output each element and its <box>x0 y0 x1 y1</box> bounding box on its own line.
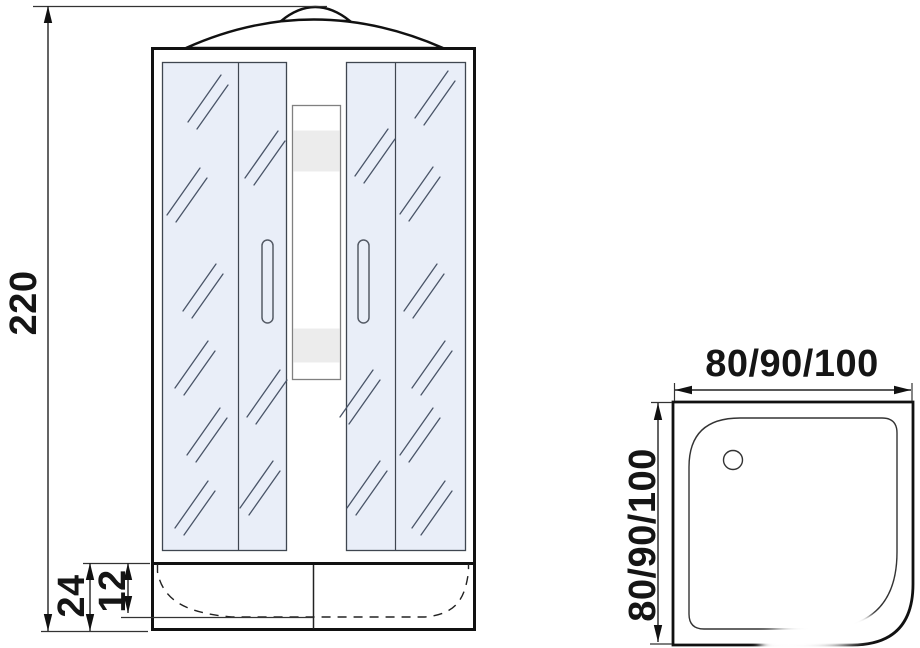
dim-label-depth: 80/90/100 <box>622 448 664 622</box>
drain-circle <box>724 451 743 470</box>
arrowhead-left <box>675 386 692 394</box>
glass-door-group-left <box>163 63 287 551</box>
dim-label-height: 220 <box>3 271 45 336</box>
shelf-band-upper <box>294 131 340 172</box>
arrowhead-down <box>654 625 662 642</box>
dimension-width: 80/90/100 <box>675 343 913 401</box>
tray-outline-top-view <box>673 402 913 645</box>
arrowhead-up <box>44 6 52 23</box>
front-view <box>151 7 476 630</box>
dim-label-tray-height: 24 <box>51 574 93 617</box>
dome-roof <box>186 20 443 49</box>
dim-label-basin-depth: 12 <box>92 569 134 612</box>
glass-door-group-right <box>347 63 466 551</box>
arrowhead-up <box>654 403 662 420</box>
technical-drawing: 220 24 12 80/90/100 80/90/100 <box>0 0 920 648</box>
dimension-depth: 80/90/100 <box>622 403 672 645</box>
shelf-band-lower <box>294 329 340 363</box>
tray-top-view <box>673 402 913 648</box>
dim-label-width: 80/90/100 <box>705 343 879 385</box>
arrowhead-right <box>894 386 911 394</box>
